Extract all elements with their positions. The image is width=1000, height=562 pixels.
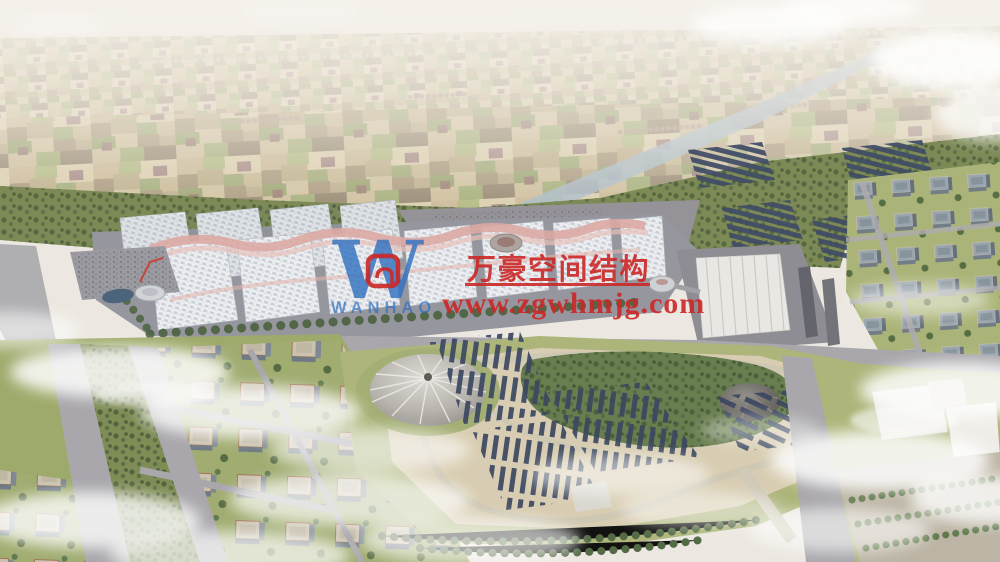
global-haze xyxy=(0,0,1000,562)
aerial-rendering: W WANHAO 万豪空间结构 www.zgwhmjg.com xyxy=(0,0,1000,562)
